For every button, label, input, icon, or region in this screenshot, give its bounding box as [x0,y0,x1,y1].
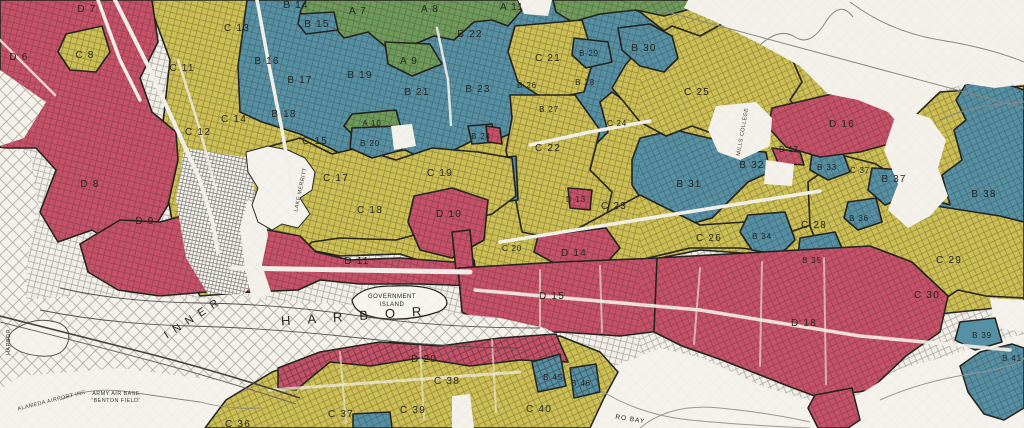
svg-text:B 24: B 24 [471,132,491,141]
svg-text:"BENTON FIELD": "BENTON FIELD" [91,398,140,404]
svg-text:C 21: C 21 [535,53,561,64]
svg-text:B 37: B 37 [881,174,906,185]
svg-text:C 12: C 12 [185,127,211,138]
svg-text:A 9: A 9 [400,56,418,67]
svg-text:B 18: B 18 [271,109,296,120]
svg-text:D 11: D 11 [344,256,369,267]
svg-text:B 39: B 39 [972,331,992,340]
svg-text:D 10: D 10 [436,209,462,220]
svg-text:B 15: B 15 [304,19,329,30]
svg-text:C 38: C 38 [434,376,460,387]
svg-text:D 7: D 7 [77,4,96,15]
svg-text:C 26: C 26 [696,233,722,244]
svg-text:A 11: A 11 [500,2,524,13]
svg-text:C 18: C 18 [357,205,383,216]
svg-text:HARBOR: HARBOR [6,329,12,355]
svg-text:D 14: D 14 [561,248,587,259]
svg-text:B 38: B 38 [971,189,996,200]
svg-text:C 24: C 24 [607,119,627,128]
svg-text:B 35: B 35 [802,256,822,265]
svg-text:B 19: B 19 [347,70,372,81]
svg-text:C 20: C 20 [502,244,522,253]
svg-text:B 45: B 45 [543,373,563,382]
svg-text:B 33: B 33 [817,163,837,172]
svg-text:B 32: B 32 [739,160,764,171]
svg-text:C 37: C 37 [850,166,870,175]
svg-text:C 25: C 25 [684,87,710,98]
svg-text:B 30: B 30 [631,43,656,54]
svg-text:C 23: C 23 [601,201,627,212]
svg-text:D 18: D 18 [791,318,817,329]
svg-text:C 11: C 11 [169,63,194,74]
svg-text:B 46: B 46 [571,379,591,388]
svg-text:C 29: C 29 [936,255,962,266]
svg-text:B 34: B 34 [752,232,772,241]
svg-text:C 36: C 36 [225,419,251,428]
svg-text:A 8: A 8 [421,4,439,15]
svg-text:GOVERNMENT: GOVERNMENT [368,294,416,300]
svg-text:B 20: B 20 [360,139,380,148]
svg-text:C 40: C 40 [526,404,552,415]
svg-text:C 39: C 39 [400,405,426,416]
svg-text:A 7: A 7 [349,6,367,17]
svg-text:D 17: D 17 [779,145,799,154]
svg-text:B 17: B 17 [287,75,312,86]
svg-text:C 28: C 28 [801,220,827,231]
svg-text:B 22: B 22 [457,29,482,40]
svg-text:B 31: B 31 [676,179,701,190]
svg-text:B 41: B 41 [1002,354,1022,363]
svg-text:C 15: C 15 [302,136,328,147]
svg-text:B 14: B 14 [283,0,308,11]
svg-text:C 37: C 37 [328,409,354,420]
svg-text:B 21: B 21 [404,87,429,98]
svg-text:D 15: D 15 [539,291,565,302]
svg-text:A 10: A 10 [362,119,381,128]
svg-text:ARMY AIR BASE: ARMY AIR BASE [92,391,140,397]
svg-text:C 19: C 19 [427,168,453,179]
svg-text:B 27: B 27 [539,105,559,114]
svg-text:B 26: B 26 [517,81,537,90]
svg-text:B 23: B 23 [465,84,490,95]
svg-text:B 16: B 16 [254,56,279,67]
svg-text:B 29: B 29 [579,49,599,58]
svg-text:D 8: D 8 [80,179,99,190]
svg-text:C 8: C 8 [75,50,94,61]
svg-text:C 22: C 22 [535,143,561,154]
svg-text:D 16: D 16 [829,119,855,130]
svg-text:C 14: C 14 [221,114,247,125]
svg-text:C 17: C 17 [323,173,349,184]
svg-text:B 28: B 28 [575,78,595,87]
svg-text:D 9: D 9 [135,216,154,227]
svg-text:B 36: B 36 [849,214,869,223]
svg-text:D 20: D 20 [411,354,437,365]
svg-text:D 13: D 13 [566,195,586,204]
svg-text:C 13: C 13 [224,23,250,34]
svg-text:D 6: D 6 [9,52,28,63]
svg-text:C 30: C 30 [914,290,940,301]
